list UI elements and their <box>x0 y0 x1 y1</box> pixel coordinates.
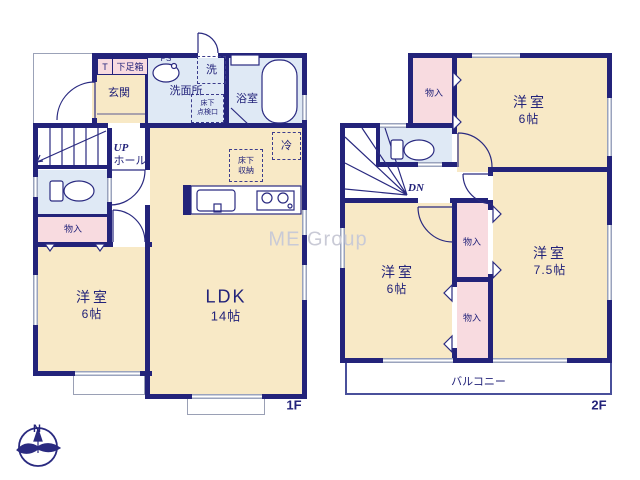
toilet2f-floor <box>380 128 452 165</box>
closet1f-label: 物入 <box>64 224 82 236</box>
sliding-door <box>418 162 442 167</box>
fridge-box: 冷 <box>272 132 301 160</box>
bedroom-ne-nook-floor <box>457 128 490 172</box>
wall-segment <box>376 162 457 167</box>
wall-segment <box>452 348 457 358</box>
t-cabinet-label: T <box>102 62 108 72</box>
access-hatch-box: 床下 点検口 <box>191 94 224 123</box>
wall-segment <box>145 205 150 399</box>
washer-label: 洗 <box>206 64 217 77</box>
ldk-size: 14帖 <box>211 309 241 326</box>
ldk-floor <box>150 128 302 394</box>
t-cabinet: T <box>97 58 113 75</box>
window <box>472 53 520 58</box>
wall-segment <box>490 167 612 172</box>
wall-segment <box>33 214 112 217</box>
watermark: ME Group <box>268 229 367 252</box>
wall-segment <box>488 167 493 176</box>
shoe-cabinet-label: 下足箱 <box>116 60 143 73</box>
entrance-label: 玄関 <box>108 86 130 100</box>
sliding-door <box>107 178 112 202</box>
bedroom-ne-size: 6帖 <box>519 112 540 128</box>
floor-storage-box: 床下 収納 <box>229 149 263 182</box>
window <box>607 98 612 156</box>
wall-segment <box>33 123 108 128</box>
wall-segment <box>452 58 457 128</box>
wall-segment <box>488 200 493 210</box>
wall-segment <box>345 198 418 203</box>
stairs-down-label: DN <box>408 181 424 195</box>
bathroom-label: 浴室 <box>236 92 258 106</box>
wall-segment <box>218 53 307 58</box>
floor2-label: 2F <box>591 398 606 415</box>
closet2f-center-label: 物入 <box>463 237 481 249</box>
window <box>380 123 406 128</box>
floor-plan: バルコニー T 下足箱 洗 床下 点検口 冷 床下 収納 <box>0 0 640 480</box>
bedroom1f-name: 洋室 <box>76 288 110 306</box>
wall-segment <box>457 277 488 282</box>
terrace-step <box>187 399 265 415</box>
wall-segment <box>488 274 493 358</box>
balcony: バルコニー <box>345 363 612 395</box>
bedroom-sw-size: 6帖 <box>387 282 408 298</box>
compass-north-label: N <box>33 422 41 436</box>
window <box>302 95 307 120</box>
wall-segment <box>452 128 457 134</box>
shoe-cabinet: 下足箱 <box>112 58 148 75</box>
window <box>33 275 38 325</box>
floor1-label: 1F <box>286 398 301 415</box>
terrace-step <box>73 376 145 395</box>
wall-segment <box>408 53 413 128</box>
pipe-space-label: PS <box>161 54 172 64</box>
window <box>607 225 612 300</box>
window <box>33 177 38 197</box>
balcony-label: バルコニー <box>451 373 506 389</box>
bedroom1f-size: 6帖 <box>82 307 103 323</box>
wall-segment <box>452 198 457 287</box>
stairs1f-floor <box>38 128 112 168</box>
bedroom-se-size: 7.5帖 <box>534 263 567 279</box>
wall-segment <box>33 123 38 376</box>
closet2f-north-label: 物入 <box>425 88 443 100</box>
ldk-name: LDK <box>205 285 246 308</box>
floor-storage-label: 床下 収納 <box>238 156 254 174</box>
bedroom-sw-name: 洋室 <box>381 263 415 281</box>
fridge-label: 冷 <box>281 140 292 153</box>
washer-box: 洗 <box>197 56 226 84</box>
wall-segment <box>33 165 112 169</box>
kitchen-wall-stub <box>183 185 191 215</box>
hall-label: ホール <box>114 154 147 168</box>
window <box>302 265 307 300</box>
porch <box>33 53 93 124</box>
wall-segment <box>413 123 457 128</box>
bedroom-ne-name: 洋室 <box>513 93 547 111</box>
wall-segment <box>33 242 113 247</box>
access-hatch-label: 床下 点検口 <box>197 100 218 116</box>
closet2f-south-label: 物入 <box>463 313 481 325</box>
bedroom-se-name: 洋室 <box>533 244 567 262</box>
toilet1f-floor <box>38 170 112 215</box>
washroom-label: 洗面所 <box>170 84 203 98</box>
